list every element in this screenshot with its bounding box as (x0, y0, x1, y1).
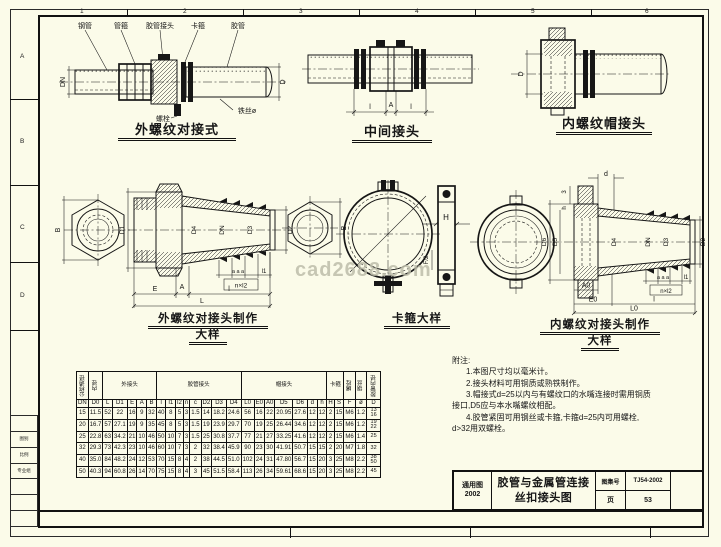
title-block-labels: 图集号 页 (596, 472, 626, 509)
table-cell: 38 50 (367, 454, 381, 466)
table-cell: 15 (317, 443, 327, 455)
table-cell: 25 (367, 431, 381, 443)
svg-text:D2: D2 (700, 237, 707, 246)
note-line: 2.接头材料可用铜质或熟铁制作。 (452, 378, 706, 389)
table-cell: 45 (367, 466, 381, 478)
table-cell: 19 (127, 419, 137, 431)
table-column-header: D2 (201, 400, 212, 408)
table-cell: 113 (241, 466, 254, 478)
table-cell: 70 (147, 466, 157, 478)
table-column-header: D3 (212, 400, 227, 408)
table-cell: 44.5 (212, 454, 227, 466)
dim-l-a-l: l A l (346, 89, 434, 116)
svg-text:l: l (653, 297, 655, 304)
table-cell: 15 (307, 466, 317, 478)
svg-text:l1: l1 (684, 275, 689, 281)
wire-label: 铁丝ø (220, 99, 257, 115)
page-number-value: 53 (626, 491, 670, 509)
table-cell: 34 (264, 466, 274, 478)
zone-letter: B (20, 138, 24, 145)
table-cell: 20.95 (275, 407, 293, 419)
table-row: 1511.5522216932408531.51418.224.65616222… (77, 407, 381, 419)
title-block-series: 通用图 2002 (454, 472, 492, 509)
table-cell: 50 (156, 431, 166, 443)
table-cell: 35 (147, 419, 157, 431)
note-line: 4.胶管紧固可用钢丝或卡箍,卡箍d=25内可用螺栓, (452, 412, 706, 423)
series-label: 通用图 (462, 482, 483, 490)
table-cell: 25 (77, 431, 89, 443)
table-cell: 2 (190, 443, 201, 455)
series-year: 2002 (465, 491, 481, 499)
table-cell: 27.1 (113, 419, 128, 431)
table-column-header: ø (355, 400, 366, 408)
table-cell: 10 (137, 431, 147, 443)
table-cell: 30.8 (212, 431, 227, 443)
table-cell: M8 (344, 454, 355, 466)
svg-text:H: H (443, 213, 449, 222)
table-cell: 16.7 (88, 419, 103, 431)
table-cell: 30 (264, 443, 274, 455)
table-cell: 2.2 (355, 466, 366, 478)
table-column-header: D1 (113, 400, 128, 408)
table-cell: 10 (166, 443, 176, 455)
table-cell: 1.5 (190, 407, 201, 419)
note-line: 1.本图尺寸均以毫米计。 (452, 366, 706, 377)
table-cell: 8 (166, 407, 176, 419)
table-cell: 14 (201, 407, 212, 419)
table-group-header: 胶管内径 (367, 372, 381, 400)
table-cell: 10 (166, 431, 176, 443)
table-cell: 70 (156, 454, 166, 466)
clamp-side-view (438, 186, 455, 296)
table-group-header: 胶管接头 (156, 372, 241, 400)
margin-row: 比例 (11, 448, 37, 464)
table-cell: 38.4 (212, 443, 227, 455)
label-coupling: 管箍 (114, 21, 128, 30)
table-cell: 8 (166, 419, 176, 431)
svg-text:l: l (410, 104, 412, 111)
svg-text:l: l (228, 286, 230, 293)
svg-text:D3: D3 (247, 225, 254, 234)
table-cell: 94 (103, 466, 113, 478)
note-line: 3.帽接式d=25以内与有螺纹口的水嘴连接时需用铜质 (452, 389, 706, 400)
table-column-header: H (327, 400, 334, 408)
table-cell: M6 (344, 431, 355, 443)
svg-text:n×l2: n×l2 (660, 289, 672, 295)
table-column-header: c (190, 400, 201, 408)
table-cell: 77 (241, 431, 254, 443)
table-cell: 24 (254, 454, 264, 466)
zone-number: 2 (183, 8, 187, 15)
table-cell: 52 (103, 407, 113, 419)
title-block-baseline (38, 510, 704, 512)
table-column-header: D5 (275, 400, 293, 408)
table-cell: 12 (307, 431, 317, 443)
table-cell: 40 (156, 407, 166, 419)
table-cell: 63 (103, 431, 113, 443)
table-cell: 59.61 (275, 466, 293, 478)
table-cell: 11.5 (88, 407, 103, 419)
table-cell: 5 (176, 419, 184, 431)
table-cell: 29.7 (226, 419, 241, 431)
notes-title: 附注: (452, 355, 706, 366)
table-column-header: DN (77, 400, 89, 408)
table-cell: 60.8 (113, 466, 128, 478)
table-column-header: E (127, 400, 137, 408)
zone-number: 4 (415, 8, 419, 15)
svg-text:DN: DN (219, 225, 226, 235)
table-cell: 40 (77, 454, 89, 466)
caption-cap-joint: 内螺纹帽接头 (556, 117, 652, 135)
table-cell: 9 (137, 419, 147, 431)
svg-text:DN: DN (60, 77, 67, 87)
table-column-header: S (334, 400, 344, 408)
svg-text:E0: E0 (589, 297, 598, 304)
table-cell: 15 (334, 419, 344, 431)
table-cell: 20 (317, 466, 327, 478)
table-row: 3229.37342.323104660107323238.445.990233… (77, 443, 381, 455)
table-cell: 7 (176, 431, 184, 443)
svg-text:A0: A0 (582, 283, 591, 290)
table-cell: 1.2 (355, 419, 366, 431)
table-cell: 22 (113, 407, 128, 419)
table-cell: M6 (344, 419, 355, 431)
table-cell: 7 (176, 443, 184, 455)
table-cell: 1.5 (190, 419, 201, 431)
hose (575, 50, 667, 98)
svg-text:B: B (55, 227, 62, 232)
table-cell: 31 (264, 454, 274, 466)
label-wire: 铁丝ø (238, 106, 257, 115)
svg-text:E: E (153, 286, 158, 293)
title-block-drawing-name: 胶管与金属管连接 丝扣接头图 (492, 472, 596, 509)
table-cell: 15 (307, 454, 317, 466)
table-column-header: d (307, 400, 317, 408)
table-cell: 2 (327, 407, 334, 419)
table-column-header: D6 (293, 400, 308, 408)
table-cell: 12 (317, 431, 327, 443)
svg-text:D4: D4 (191, 225, 198, 234)
drawing-title-line2: 丝扣接头图 (515, 491, 573, 505)
svg-text:a a a: a a a (657, 275, 670, 281)
svg-text:D5: D5 (552, 237, 559, 246)
label-steel-pipe: 钢管 (78, 21, 92, 30)
table-cell: 1.2 (355, 407, 366, 419)
diagram-external-thread-assembly: 钢管 管箍 胶管接头 卡箍 胶管 (55, 18, 290, 122)
table-cell: 32 (367, 443, 381, 455)
cap-nut (541, 28, 575, 115)
diagram-cap-joint: D (503, 26, 678, 116)
svg-text:d: d (604, 171, 608, 178)
hose-joint-part (151, 54, 177, 104)
table-cell: 19 (254, 419, 264, 431)
table-cell: 34.6 (293, 419, 308, 431)
table-cell: 21 (127, 431, 137, 443)
table-column-header: A (137, 400, 147, 408)
table-cell: 5 (176, 407, 184, 419)
table-cell: 8 (176, 454, 184, 466)
table-cell: 2 (327, 419, 334, 431)
table-cell: 15 (334, 431, 344, 443)
table-cell: 3 (327, 454, 334, 466)
table-cell: 14 (137, 466, 147, 478)
table-cell: 22.8 (88, 431, 103, 443)
table-cell: 45.9 (226, 443, 241, 455)
table-column-header: h (317, 400, 327, 408)
table-cell: 12 (307, 407, 317, 419)
table-cell: 27 (264, 431, 274, 443)
svg-text:a a a: a a a (232, 269, 245, 275)
table-cell: 51.0 (226, 454, 241, 466)
note-line: 接口,D5应与本水嘴螺纹相配。 (452, 400, 706, 411)
table-group-header: 螺栓 (344, 372, 355, 400)
table-cell: 33.25 (275, 431, 293, 443)
margin-row (11, 511, 37, 526)
svg-text:D: D (518, 71, 525, 76)
table-cell: 26 (127, 466, 137, 478)
table-cell: 23 (127, 443, 137, 455)
page-label: 页 (596, 491, 625, 509)
table-cell: 12 (137, 454, 147, 466)
margin-row (11, 416, 37, 432)
table-cell: 41.91 (275, 443, 293, 455)
zone-letter: C (20, 224, 25, 231)
title-block-values: TJ54-2002 53 (626, 472, 671, 509)
svg-text:D: D (280, 79, 287, 84)
table-row: 5040.39460.826147075158434551.558.411326… (77, 466, 381, 478)
caption-internal-joint-detail: 内螺纹对接头制作 (540, 319, 660, 335)
table-cell: 47.80 (275, 454, 293, 466)
table-cell: 12 (317, 419, 327, 431)
table-cell: 1.4 (355, 431, 366, 443)
table-cell: 20 (77, 419, 89, 431)
table-cell: 60 (156, 443, 166, 455)
table-column-header: B (147, 400, 157, 408)
label-hose: 胶管 (231, 21, 245, 30)
table-group-header: 公称通径 (77, 372, 89, 400)
caption-clamp-detail: 卡箍大样 (384, 313, 450, 329)
caption-external-thread-type: 外螺纹对接式 (118, 123, 236, 141)
table-column-header: D0 (88, 400, 103, 408)
table-cell: 12 (307, 419, 317, 431)
table-cell: 50 (77, 466, 89, 478)
table-cell: M7 (344, 443, 355, 455)
table-cell: 16 (127, 407, 137, 419)
diagram-internal-joint-detail: d 3 h D6 D5 D4 DN D3 D2 a a a l1 n×l2 (464, 166, 706, 318)
table-cell: 46 (147, 443, 157, 455)
table-cell: 15 (166, 466, 176, 478)
table-column-header: F (344, 400, 355, 408)
table-group-header: 钢丝 (355, 372, 366, 400)
label-hose-joint: 胶管接头 (146, 21, 174, 30)
table-cell: 25 (264, 419, 274, 431)
notes-block: 附注: 1.本图尺寸均以毫米计。 2.接头材料可用铜质或熟铁制作。 3.帽接式d… (452, 355, 706, 435)
table-cell: 1.8 (355, 443, 366, 455)
table-cell: 26 (254, 466, 264, 478)
table-cell: 2.2 (355, 454, 366, 466)
table-cell: 25 (201, 431, 212, 443)
margin-signature-table: 图别 比例 专业组 (10, 415, 38, 527)
zone-letter: D (20, 292, 25, 299)
svg-text:n×l2: n×l2 (235, 283, 248, 290)
table-cell: 56.7 (293, 454, 308, 466)
margin-row (11, 495, 37, 511)
table-column-header: l (156, 400, 166, 408)
table-cell: 10 (137, 443, 147, 455)
table-row: 4035.08448.224125370158423844.551.010224… (77, 454, 381, 466)
zone-number: 5 (531, 8, 535, 15)
table-cell: 41.6 (293, 431, 308, 443)
drawing-sheet: 1 2 3 4 5 6 A B C D 钢管 管箍 胶管接头 卡箍 胶管 (0, 0, 721, 547)
table-cell: 19 (201, 419, 212, 431)
table-cell: 27.6 (293, 407, 308, 419)
table-cell: 15 (307, 443, 317, 455)
table-cell: 53 (147, 454, 157, 466)
table-cell: 24 (127, 454, 137, 466)
table-column-header: l1 (166, 400, 176, 408)
svg-text:DN: DN (645, 237, 652, 247)
svg-text:D4: D4 (611, 237, 618, 246)
table-column-header: A0 (264, 400, 274, 408)
watermark: cad2688.com (295, 259, 432, 282)
table-cell: 13 16 (367, 407, 381, 419)
table-column-header: E0 (254, 400, 264, 408)
table-cell: 90 (241, 443, 254, 455)
table-cell: 23.9 (212, 419, 227, 431)
table-cell: 8 (176, 466, 184, 478)
zone-number: 6 (645, 8, 649, 15)
table-cell: 9 (137, 407, 147, 419)
table-cell: 20 (317, 454, 327, 466)
table-cell: 42.3 (113, 443, 128, 455)
clamp-hex-view (282, 196, 338, 260)
diagram-external-joint-detail: B D1 D4 (56, 176, 294, 311)
table-cell: 18.2 (212, 407, 227, 419)
table-cell: 34.2 (113, 431, 128, 443)
table-cell: 73 (103, 443, 113, 455)
table-column-header: D (367, 400, 381, 408)
table-cell: 26.44 (275, 419, 293, 431)
table-cell: 32 (77, 443, 89, 455)
svg-text:3: 3 (562, 190, 568, 194)
table-cell: 32 (201, 443, 212, 455)
round-end-view (470, 190, 562, 294)
table-group-header: 帽接头 (241, 372, 327, 400)
table-cell: 29.3 (88, 443, 103, 455)
diagram-clamp-detail: B H (286, 176, 462, 311)
table-cell: 3 (190, 466, 201, 478)
svg-text:D3: D3 (663, 237, 670, 246)
table-cell: 19 22 (367, 419, 381, 431)
bolt-part: 螺栓 (156, 104, 181, 123)
table-cell: 102 (241, 454, 254, 466)
table-cell: 16 (254, 407, 264, 419)
zone-number: 1 (80, 8, 84, 15)
margin-row: 专业组 (11, 464, 37, 480)
svg-text:L: L (200, 298, 204, 305)
table-cell: 45 (156, 419, 166, 431)
table-cell: 24.6 (226, 407, 241, 419)
table-cell: 25 (334, 454, 344, 466)
table-cell: 25 (334, 466, 344, 478)
atlas-number-value: TJ54-2002 (626, 472, 670, 491)
table-cell: 15 (334, 407, 344, 419)
zone-number: 3 (299, 8, 303, 15)
table-cell: 35.0 (88, 454, 103, 466)
note-line: d>32用双螺栓。 (452, 423, 706, 434)
svg-text:D6: D6 (541, 237, 548, 246)
title-block-empty-cell (671, 472, 702, 509)
table-cell: 2 (327, 443, 334, 455)
table-cell: M8 (344, 466, 355, 478)
table-row: 2522.86334.22110465010731.52530.837.7772… (77, 431, 381, 443)
atlas-number-label: 图集号 (596, 472, 625, 491)
zone-letter: A (20, 53, 24, 60)
table-cell: 3 (327, 466, 334, 478)
table-cell: 20 (334, 443, 344, 455)
svg-text:L0: L0 (630, 306, 638, 313)
table-cell: 1.5 (190, 431, 201, 443)
table-group-header: 卡箍 (327, 372, 344, 400)
table-cell: 51.5 (212, 466, 227, 478)
table-column-header: l2 (176, 400, 184, 408)
title-block: 通用图 2002 胶管与金属管连接 丝扣接头图 图集号 页 TJ54-2002 … (452, 470, 704, 511)
svg-text:D1: D1 (119, 225, 126, 234)
table-cell: 50.7 (293, 443, 308, 455)
table-cell: 2 (190, 454, 201, 466)
table-cell: 40.3 (88, 466, 103, 478)
table-cell: 22 (264, 407, 274, 419)
table-group-header: 内径 (88, 372, 103, 400)
table-cell: 84 (103, 454, 113, 466)
svg-text:A: A (180, 284, 185, 291)
table-cell: M6 (344, 407, 355, 419)
dimension-table: 公称通径内径外接头胶管接头帽接头卡箍螺栓钢丝胶管内径DND0LD1EABll1l… (76, 371, 381, 478)
table-group-header: 外接头 (103, 372, 156, 400)
svg-text:h: h (562, 206, 568, 209)
table-cell: 12 (317, 407, 327, 419)
table-cell: 2 (327, 431, 334, 443)
caption-internal-joint-scale: 大样 (581, 335, 619, 351)
table-row: 2016.75727.119935458531.51923.929.770192… (77, 419, 381, 431)
table-cell: 48.2 (113, 454, 128, 466)
table-cell: 58.4 (226, 466, 241, 478)
table-cell: 32 (147, 407, 157, 419)
table-cell: 21 (254, 431, 264, 443)
caption-external-joint-scale: 大样 (189, 329, 227, 345)
svg-text:A: A (389, 102, 394, 109)
table-cell: 45 (201, 466, 212, 478)
table-cell: 70 (241, 419, 254, 431)
drawing-title-line1: 胶管与金属管连接 (498, 476, 590, 490)
table-column-header: L0 (241, 400, 254, 408)
label-clamp: 卡箍 (191, 21, 205, 30)
table-cell: 57 (103, 419, 113, 431)
table-column-header: L (103, 400, 113, 408)
svg-text:l1: l1 (262, 269, 267, 275)
table-cell: 75 (156, 466, 166, 478)
svg-text:l: l (369, 104, 371, 111)
table-cell: 15 (166, 454, 176, 466)
table-cell: 23 (254, 443, 264, 455)
table-cell: 38 (201, 454, 212, 466)
table-column-header: D4 (226, 400, 241, 408)
table-cell: 68.6 (293, 466, 308, 478)
table-cell: 15 (77, 407, 89, 419)
table-cell: 46 (147, 431, 157, 443)
margin-row (11, 479, 37, 495)
caption-middle-joint: 中间接头 (352, 125, 432, 143)
